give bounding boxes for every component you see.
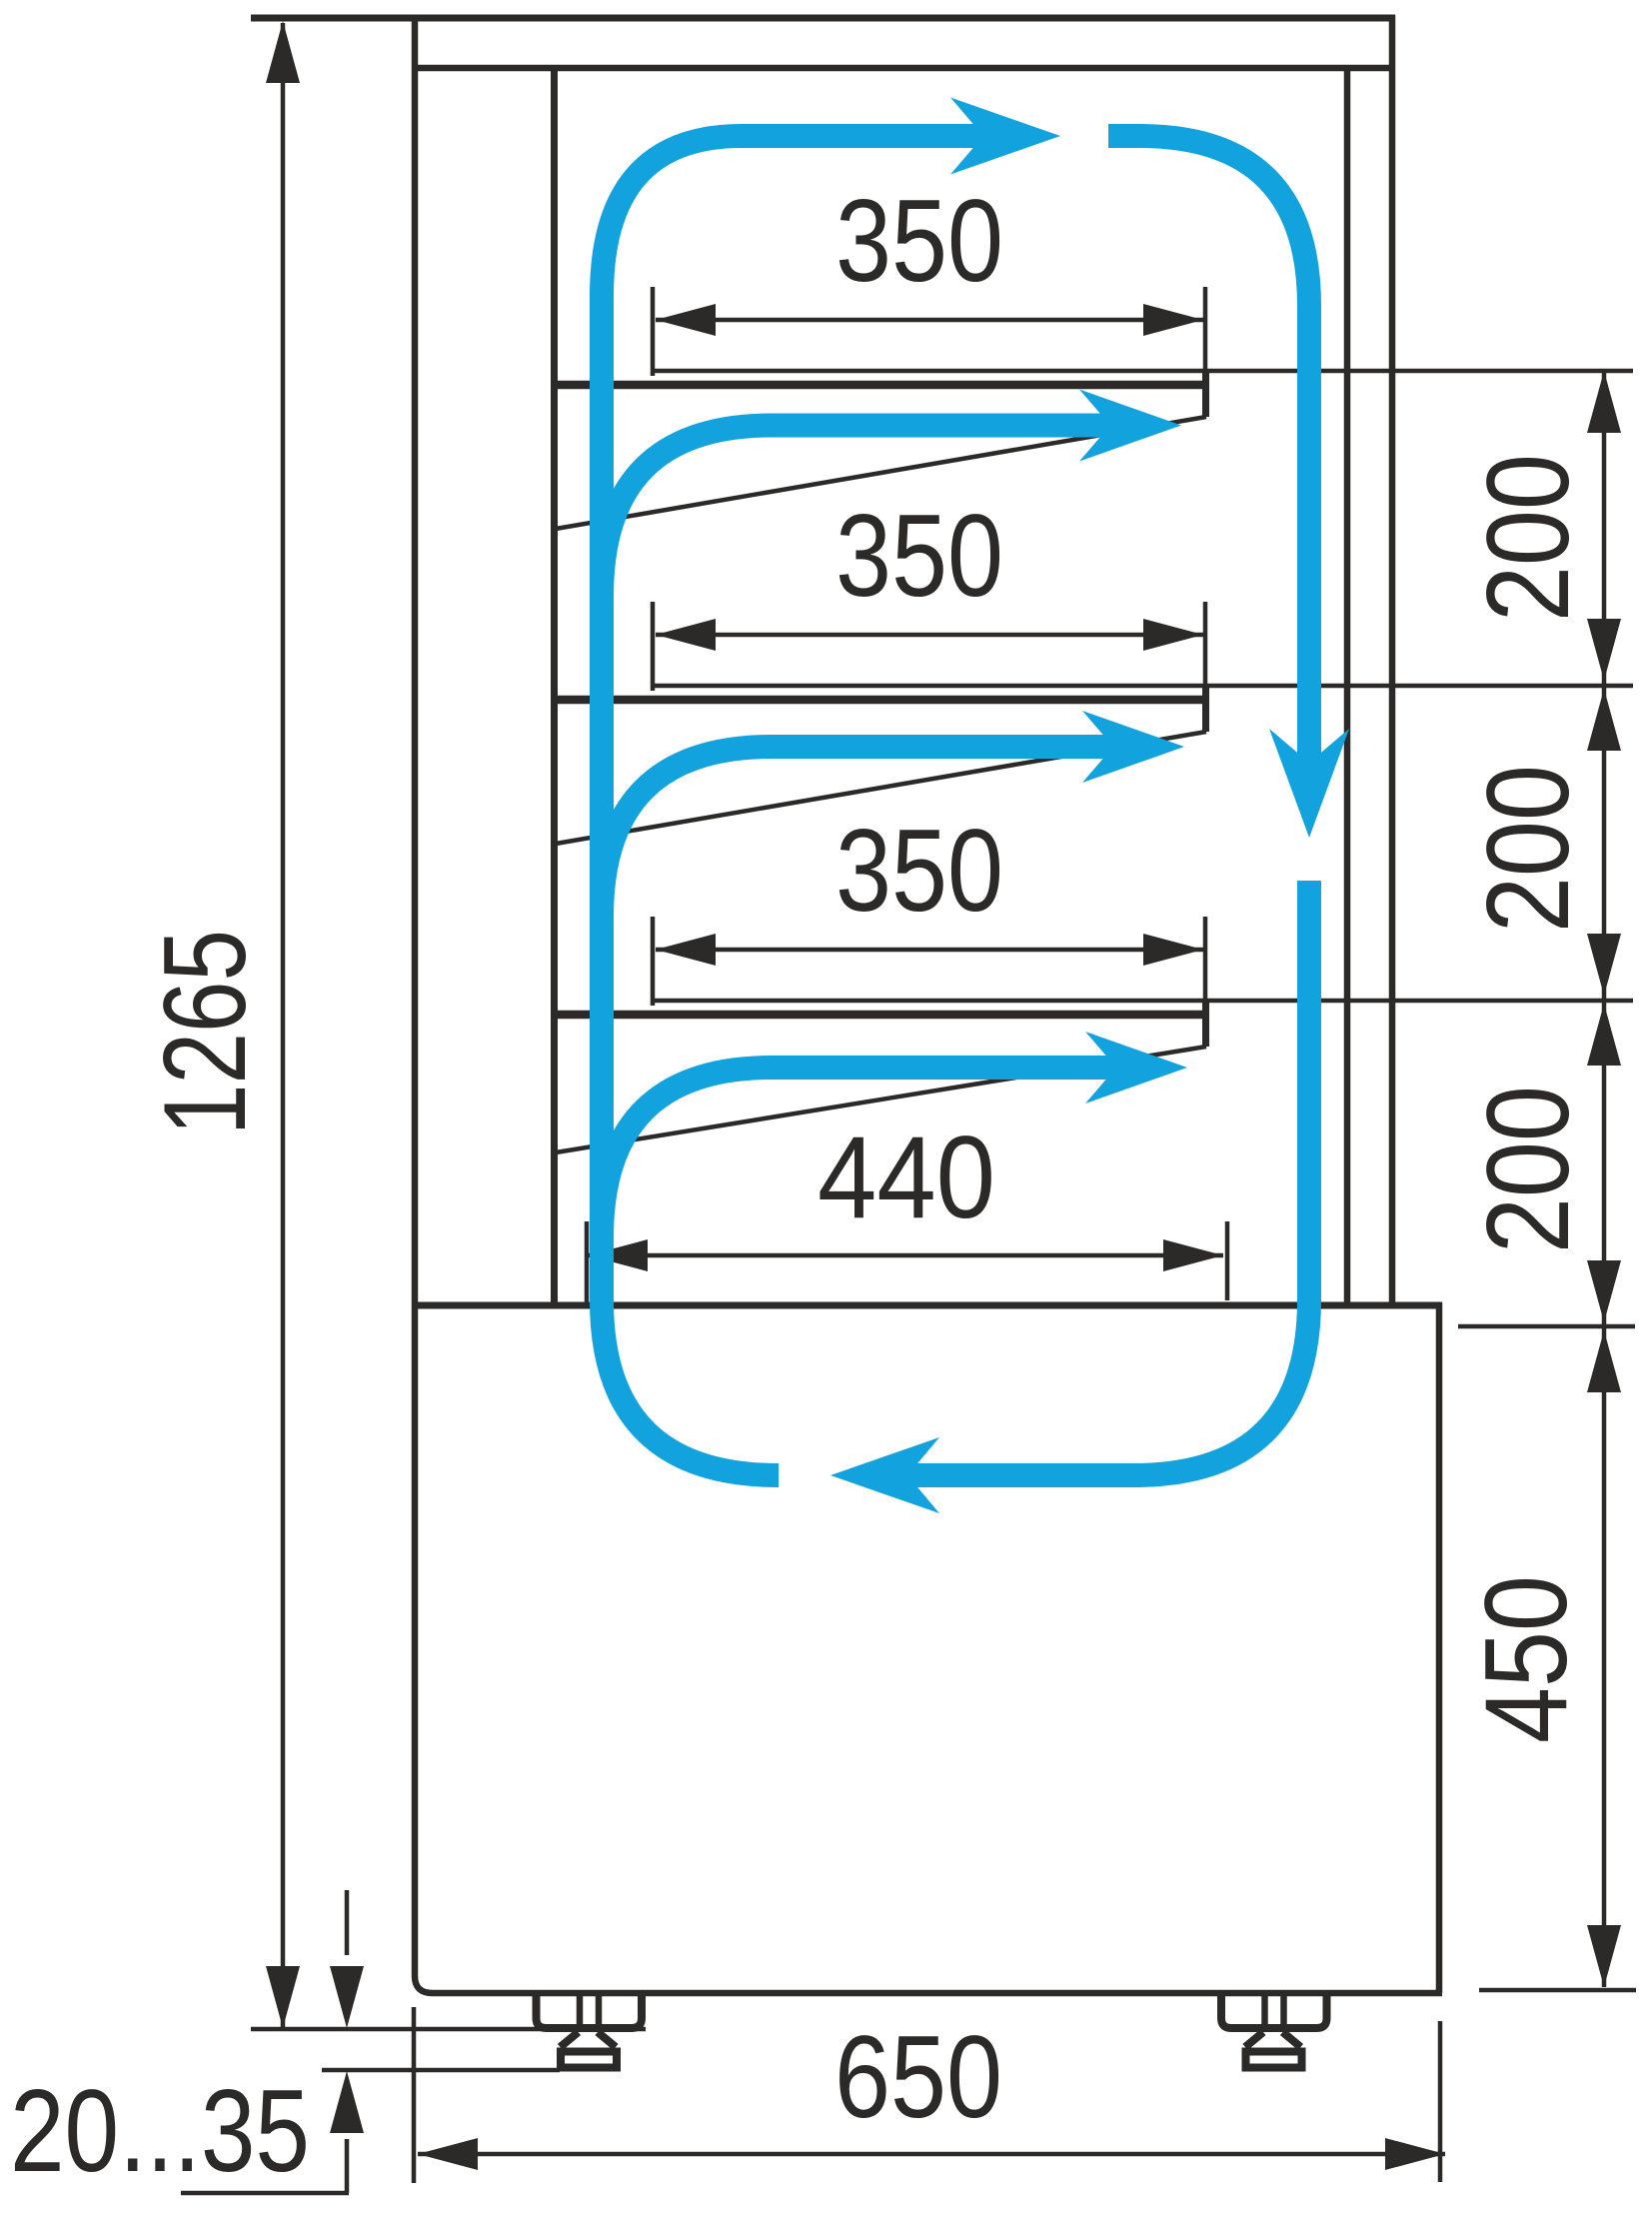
svg-text:440: 440 xyxy=(818,1111,995,1242)
svg-text:200: 200 xyxy=(1462,454,1593,622)
svg-text:200: 200 xyxy=(1462,765,1593,933)
svg-text:350: 350 xyxy=(835,805,1003,936)
svg-text:650: 650 xyxy=(834,2011,1002,2142)
svg-text:1265: 1265 xyxy=(139,930,270,1135)
svg-text:350: 350 xyxy=(835,490,1003,621)
svg-text:20...35: 20...35 xyxy=(10,2065,310,2196)
svg-text:200: 200 xyxy=(1462,1086,1593,1253)
svg-text:350: 350 xyxy=(835,175,1003,306)
svg-text:450: 450 xyxy=(1460,1575,1591,1743)
